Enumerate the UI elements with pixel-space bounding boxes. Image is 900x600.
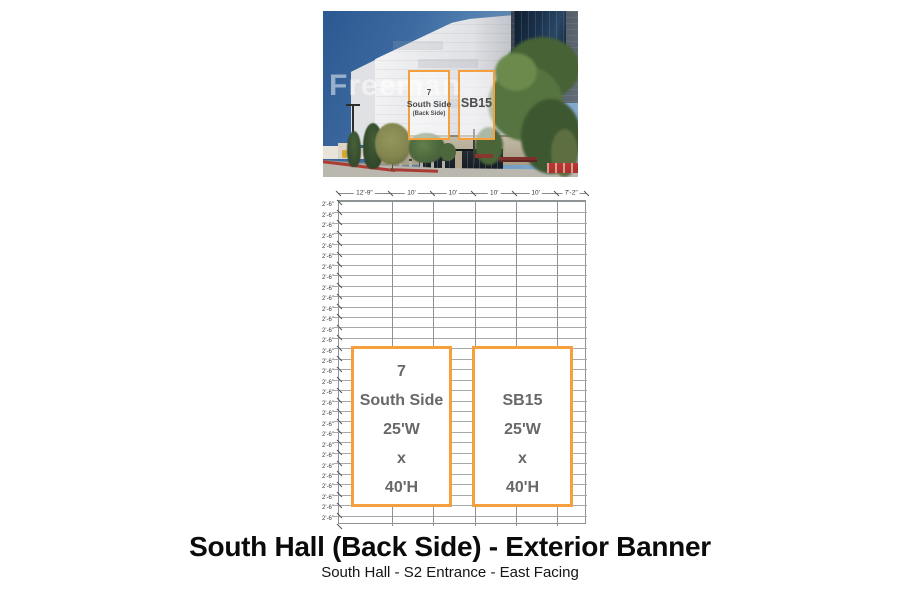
- grid-row-line: [334, 244, 587, 245]
- row-dimension-label: 2'-6": [322, 359, 334, 365]
- red-barrier: [547, 163, 578, 173]
- bench: [475, 154, 493, 158]
- page-canvas: Freeman 7 South Side (Back Side) SB: [0, 0, 900, 600]
- page-title: South Hall (Back Side) - Exterior Banner: [0, 531, 900, 563]
- row-dimension-label: 2'-6": [322, 390, 334, 396]
- column-dimension-label: 10': [405, 190, 417, 197]
- row-dimension-label: 2'-6": [322, 254, 334, 260]
- banner-text-line: 25'W: [475, 415, 570, 444]
- elevation-diagram: 12'-9"10'10'10'10'7'-2" 2'-6"2'-6"2'-6"2…: [312, 180, 592, 530]
- column-dimension-label: 12'-9": [354, 190, 375, 197]
- banner-text-line: 40'H: [475, 473, 570, 502]
- row-dimension-label: 2'-6": [322, 505, 334, 511]
- diagram-banner-sb15: SB1525'Wx40'H: [472, 346, 573, 507]
- row-dimension-label: 2'-6": [322, 422, 334, 428]
- tree: [375, 123, 411, 165]
- grid-row-line: [334, 338, 587, 339]
- row-dimension-label: 2'-6": [322, 307, 334, 313]
- site-photo: Freeman 7 South Side (Back Side) SB: [323, 11, 578, 177]
- streetlight-arm: [346, 104, 360, 106]
- column-dimension-tick: [335, 191, 341, 197]
- column-dimension-label: 10': [488, 190, 500, 197]
- column-dimension-label: 10': [529, 190, 541, 197]
- grid-row-line: [334, 307, 587, 308]
- grid-row-line: [334, 296, 587, 297]
- column-dimension-label: 7'-2": [563, 190, 580, 197]
- page-subtitle: South Hall - S2 Entrance - East Facing: [0, 564, 900, 581]
- grid-row-line: [334, 286, 587, 287]
- facade-panel: [418, 59, 478, 68]
- dimension-line: [338, 193, 586, 194]
- row-dimension-label: 2'-6": [322, 244, 334, 250]
- row-dimension-label: 2'-6": [322, 369, 334, 375]
- banner-text-line: x: [354, 444, 449, 473]
- row-dimension-tick: [336, 199, 342, 205]
- banner-text-line: SB15: [475, 386, 570, 415]
- bollard: [409, 159, 412, 168]
- row-dimension-label: 2'-6": [322, 202, 334, 208]
- bush: [440, 143, 456, 161]
- grid-row-line: [334, 212, 587, 213]
- row-dimension-label: 2'-6": [322, 223, 334, 229]
- diagram-banner-7-south-side: 7South Side25'Wx40'H: [351, 346, 452, 507]
- photo-banner-name: SB15: [461, 96, 492, 110]
- banner-text-line: 40'H: [354, 473, 449, 502]
- banner-text-line: x: [475, 444, 570, 473]
- row-dimension-label: 2'-6": [322, 296, 334, 302]
- row-dimension-label: 2'-6": [322, 380, 334, 386]
- grid-row-line: [334, 317, 587, 318]
- photo-banner-number: 7: [427, 88, 431, 97]
- row-dimension-label: 2'-6": [322, 286, 334, 292]
- row-dimension-tick: [336, 523, 342, 529]
- photo-banner-sb15: SB15: [458, 70, 495, 140]
- photo-banner-note: (Back Side): [413, 111, 446, 118]
- row-dimension-label: 2'-6": [322, 484, 334, 490]
- photo-banner-name: South Side: [407, 99, 451, 109]
- facade-panel: [393, 41, 443, 50]
- row-dimension-label: 2'-6": [322, 516, 334, 522]
- row-dimension-label: 2'-6": [322, 432, 334, 438]
- bench: [499, 157, 537, 162]
- row-dimension-label: 2'-6": [322, 213, 334, 219]
- row-dimension-label: 2'-6": [322, 265, 334, 271]
- grid-row-line: [334, 516, 587, 517]
- row-dimension-label: 2'-6": [322, 474, 334, 480]
- dimension-header: 12'-9"10'10'10'10'7'-2": [338, 189, 586, 197]
- distant-building: [323, 146, 338, 159]
- row-dimension-label: 2'-6": [322, 275, 334, 281]
- banner-text-line: South Side: [354, 386, 449, 415]
- banner-text-line: 25'W: [354, 415, 449, 444]
- row-dimension-label: 2'-6": [322, 443, 334, 449]
- column-dimension-label: 10': [447, 190, 459, 197]
- row-dimension-label: 2'-6": [322, 338, 334, 344]
- grid-row-line: [334, 254, 587, 255]
- grid-row-line: [334, 233, 587, 234]
- tree: [495, 53, 537, 91]
- grid-row-line: [334, 223, 587, 224]
- row-dimension-label: 2'-6": [322, 328, 334, 334]
- row-dimension-label: 2'-6": [322, 349, 334, 355]
- row-dimension-label: 2'-6": [322, 401, 334, 407]
- grid: 7South Side25'Wx40'H SB1525'Wx40'H: [338, 200, 586, 524]
- row-dimension-label: 2'-6": [322, 464, 334, 470]
- tree: [347, 131, 361, 167]
- row-dimension-labels: 2'-6"2'-6"2'-6"2'-6"2'-6"2'-6"2'-6"2'-6"…: [312, 200, 338, 524]
- row-dimension-label: 2'-6": [322, 495, 334, 501]
- row-dimension-label: 2'-6": [322, 453, 334, 459]
- row-dimension-label: 2'-6": [322, 317, 334, 323]
- photo-banner-7-south-side: 7 South Side (Back Side): [408, 70, 450, 140]
- grid-row-line: [334, 327, 587, 328]
- row-dimension-label: 2'-6": [322, 234, 334, 240]
- grid-row-line: [334, 265, 587, 266]
- row-dimension-label: 2'-6": [322, 411, 334, 417]
- banner-text-line: 7: [354, 357, 449, 386]
- grid-row-line: [334, 275, 587, 276]
